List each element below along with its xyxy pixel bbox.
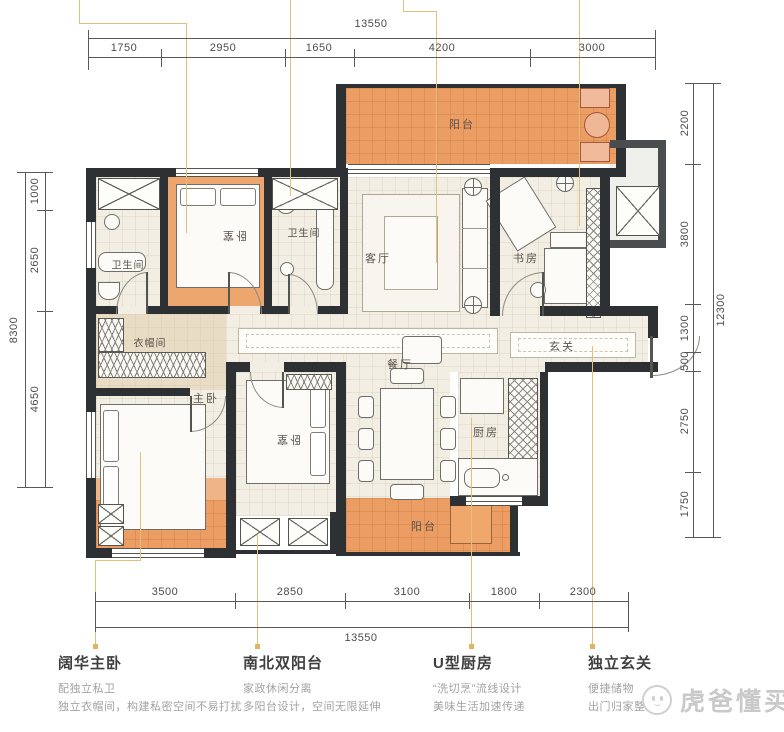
annotation-title: 南北双阳台	[243, 652, 433, 673]
hallway-runner-inner	[246, 334, 490, 348]
dim-tick	[88, 30, 89, 70]
dining-chair	[358, 460, 374, 482]
dim-seg: 500	[679, 351, 691, 371]
kitchen-sink	[464, 468, 500, 488]
dim-seg: 1300	[679, 315, 691, 341]
dim-seg: 1750	[111, 42, 137, 54]
dim-seg: 2300	[570, 586, 596, 598]
wall	[490, 168, 610, 177]
room-label-balcony-top: 阳台	[449, 116, 475, 132]
dim-seg: 4650	[29, 386, 41, 412]
wall	[336, 84, 346, 177]
wall	[336, 362, 346, 490]
desk-monitor	[550, 232, 588, 248]
door-leaf	[542, 272, 544, 316]
dim-line	[95, 627, 628, 628]
pillow	[220, 188, 256, 206]
dim-tick	[685, 371, 701, 372]
dim-tick	[235, 593, 236, 609]
sofa	[462, 188, 488, 308]
door-leaf	[282, 372, 284, 408]
wall	[346, 552, 520, 556]
wall	[490, 297, 500, 316]
dim-line	[88, 57, 655, 58]
room-label-bath-mid: 卫生间	[288, 225, 321, 240]
leader-dot	[469, 644, 474, 649]
leader-line-kitchen	[471, 418, 472, 648]
dim-tick	[628, 592, 629, 632]
wall	[540, 372, 548, 502]
balcony-top-floor	[346, 88, 616, 164]
sink-left-bath	[104, 214, 120, 230]
room-label-bedroom-top: 卧室	[221, 228, 247, 244]
dim-tick	[685, 164, 701, 165]
balcony-table	[584, 112, 610, 138]
pillow	[310, 432, 326, 476]
room-label-foyer: 玄关	[549, 338, 575, 354]
room-label-dining: 餐厅	[387, 356, 413, 372]
leader-line-master	[95, 560, 141, 561]
dim-tick	[530, 49, 531, 67]
door-leaf-entrance	[650, 336, 653, 378]
dim-tick	[469, 593, 470, 609]
annotation-title: 独立玄关	[588, 652, 738, 673]
window	[176, 168, 258, 177]
annotation-balcony: 南北双阳台 家政休闲分离 多阳台设计，空间无限延伸	[243, 652, 433, 716]
door-leaf	[190, 396, 192, 432]
dim-seg: 3800	[679, 221, 691, 247]
fridge	[460, 378, 504, 414]
door-leaf	[228, 272, 230, 314]
hallway-runner	[238, 328, 498, 354]
dim-tick	[685, 83, 721, 84]
window	[112, 548, 204, 558]
leader-line	[290, 0, 291, 196]
dim-seg: 3500	[152, 586, 178, 598]
annotation-kitchen: U型厨房 “洗切烹”流线设计 美味生活加速传递	[433, 652, 593, 716]
cloakroom-closet-side	[98, 318, 124, 352]
wall	[545, 362, 658, 372]
balcony-chair	[580, 88, 610, 108]
balcony-slider-window	[348, 164, 490, 174]
dim-seg: 3000	[579, 42, 605, 54]
sofa-cushion-line	[462, 268, 488, 269]
bay-window-box	[272, 178, 338, 210]
floorplan-page: 阳台 卫生间 卧室 卫生间 客厅 书房 衣帽间 主卧 卧室 餐厅 厨房 玄关 阳…	[0, 0, 784, 732]
dim-seg: 1000	[29, 178, 41, 204]
room-label-study: 书房	[513, 250, 539, 266]
annotation-line: 美味生活加速传递	[433, 698, 593, 714]
dining-chair	[358, 428, 374, 450]
wall	[340, 177, 348, 314]
room-label-master: 主卧	[193, 390, 219, 406]
window	[86, 412, 96, 478]
dim-tick	[95, 592, 96, 632]
annotation-line: 多阳台设计，空间无限延伸	[243, 698, 433, 714]
leader-line	[79, 23, 187, 24]
elevator-box	[616, 186, 660, 236]
leader-line-master	[140, 452, 141, 561]
door-leaf	[288, 274, 290, 314]
wall	[606, 168, 626, 177]
dim-seg: 2200	[679, 110, 691, 136]
dim-seg: 2750	[679, 408, 691, 434]
dim-seg: 2850	[277, 586, 303, 598]
dim-tick	[345, 593, 346, 609]
dim-total-left: 8300	[8, 317, 20, 343]
bay-window-box	[288, 518, 328, 546]
wall	[236, 550, 336, 554]
dim-seg: 1800	[491, 586, 517, 598]
room-label-bedroom-bottom: 卧室	[275, 432, 301, 448]
door-opening	[250, 362, 284, 372]
annotation-line: 家政休闲分离	[243, 680, 433, 696]
wall	[264, 177, 272, 306]
dim-tick	[685, 304, 701, 305]
dim-line	[95, 601, 628, 602]
dim-line	[25, 172, 26, 487]
annotation-line: “洗切烹”流线设计	[433, 680, 593, 696]
annotation-title: U型厨房	[433, 652, 593, 673]
window	[86, 222, 96, 268]
dining-chair	[440, 460, 456, 482]
wall	[648, 316, 658, 338]
wall	[330, 512, 340, 554]
dim-tick	[539, 593, 540, 609]
sofa-cushion-line	[462, 228, 488, 229]
dim-tick	[37, 210, 53, 211]
watermark: 虎爸懂买房	[642, 682, 784, 718]
dim-seg: 3100	[394, 586, 420, 598]
room-label-kitchen: 厨房	[473, 424, 499, 440]
leader-line	[579, 0, 580, 226]
bay-window-box	[98, 178, 160, 210]
dim-tick	[655, 30, 656, 70]
dining-chair	[390, 484, 424, 500]
dim-line	[88, 38, 655, 39]
dim-tick	[37, 311, 53, 312]
watermark-text: 虎爸懂买房	[680, 682, 784, 718]
leader-line-foyer	[592, 346, 593, 648]
window	[466, 496, 522, 506]
leader-line	[186, 23, 187, 233]
dim-tick	[685, 472, 701, 473]
wall	[490, 177, 500, 297]
side-table-bottom	[464, 296, 482, 314]
wall	[596, 306, 658, 316]
room-label-bath-left: 卫生间	[112, 257, 145, 272]
dim-tick	[685, 537, 721, 538]
dim-tick	[17, 172, 53, 173]
leader-dot	[93, 644, 98, 649]
dim-seg: 2950	[210, 42, 236, 54]
leader-line	[79, 0, 80, 24]
cloakroom-closet-long	[98, 352, 206, 378]
bedroom-bottom-closet	[286, 374, 332, 390]
leader-line	[403, 11, 437, 12]
master-bay-box	[98, 526, 124, 546]
balcony-chair	[580, 142, 610, 162]
core-wall	[610, 240, 666, 248]
dim-tick	[354, 49, 355, 67]
study-wardrobe	[586, 188, 601, 318]
dim-tick	[161, 49, 162, 67]
living-coffee-table	[384, 216, 438, 290]
wall	[336, 84, 626, 88]
master-bay-box	[98, 504, 124, 524]
bay-window-box	[240, 518, 280, 546]
dim-seg: 4200	[429, 42, 455, 54]
wall	[96, 388, 190, 396]
side-table-top	[464, 178, 482, 196]
dim-tick	[285, 49, 286, 67]
dim-total-top: 13550	[354, 18, 387, 30]
wall	[600, 177, 610, 316]
dim-seg: 2650	[29, 247, 41, 273]
pillow	[103, 410, 119, 462]
dim-line	[693, 83, 694, 537]
dim-line	[713, 83, 714, 537]
door-leaf	[146, 272, 148, 314]
tiger-face-icon	[642, 685, 672, 715]
wall	[540, 306, 600, 316]
room-label-balcony-bottom: 阳台	[411, 518, 437, 534]
wall	[226, 362, 236, 516]
leader-line-balcony	[257, 534, 258, 648]
dim-total-bottom: 13550	[344, 632, 377, 644]
dim-seg: 1650	[306, 42, 332, 54]
dim-line	[45, 172, 46, 487]
wall	[226, 512, 236, 554]
dim-total-right: 12300	[715, 293, 727, 326]
dining-chair	[440, 428, 456, 450]
leader-dot	[255, 644, 260, 649]
wall	[160, 177, 168, 306]
room-label-living: 客厅	[365, 250, 391, 266]
dining-chair	[358, 396, 374, 418]
pillow	[310, 384, 326, 428]
dining-chair	[440, 396, 456, 418]
leader-dot	[590, 644, 595, 649]
dim-tick	[17, 487, 53, 488]
wall	[616, 84, 626, 172]
room-label-cloakroom: 衣帽间	[134, 335, 167, 350]
dining-table	[380, 388, 434, 480]
kitchen-faucet	[502, 474, 509, 481]
toilet-left	[98, 282, 120, 300]
dim-seg: 1750	[679, 491, 691, 517]
